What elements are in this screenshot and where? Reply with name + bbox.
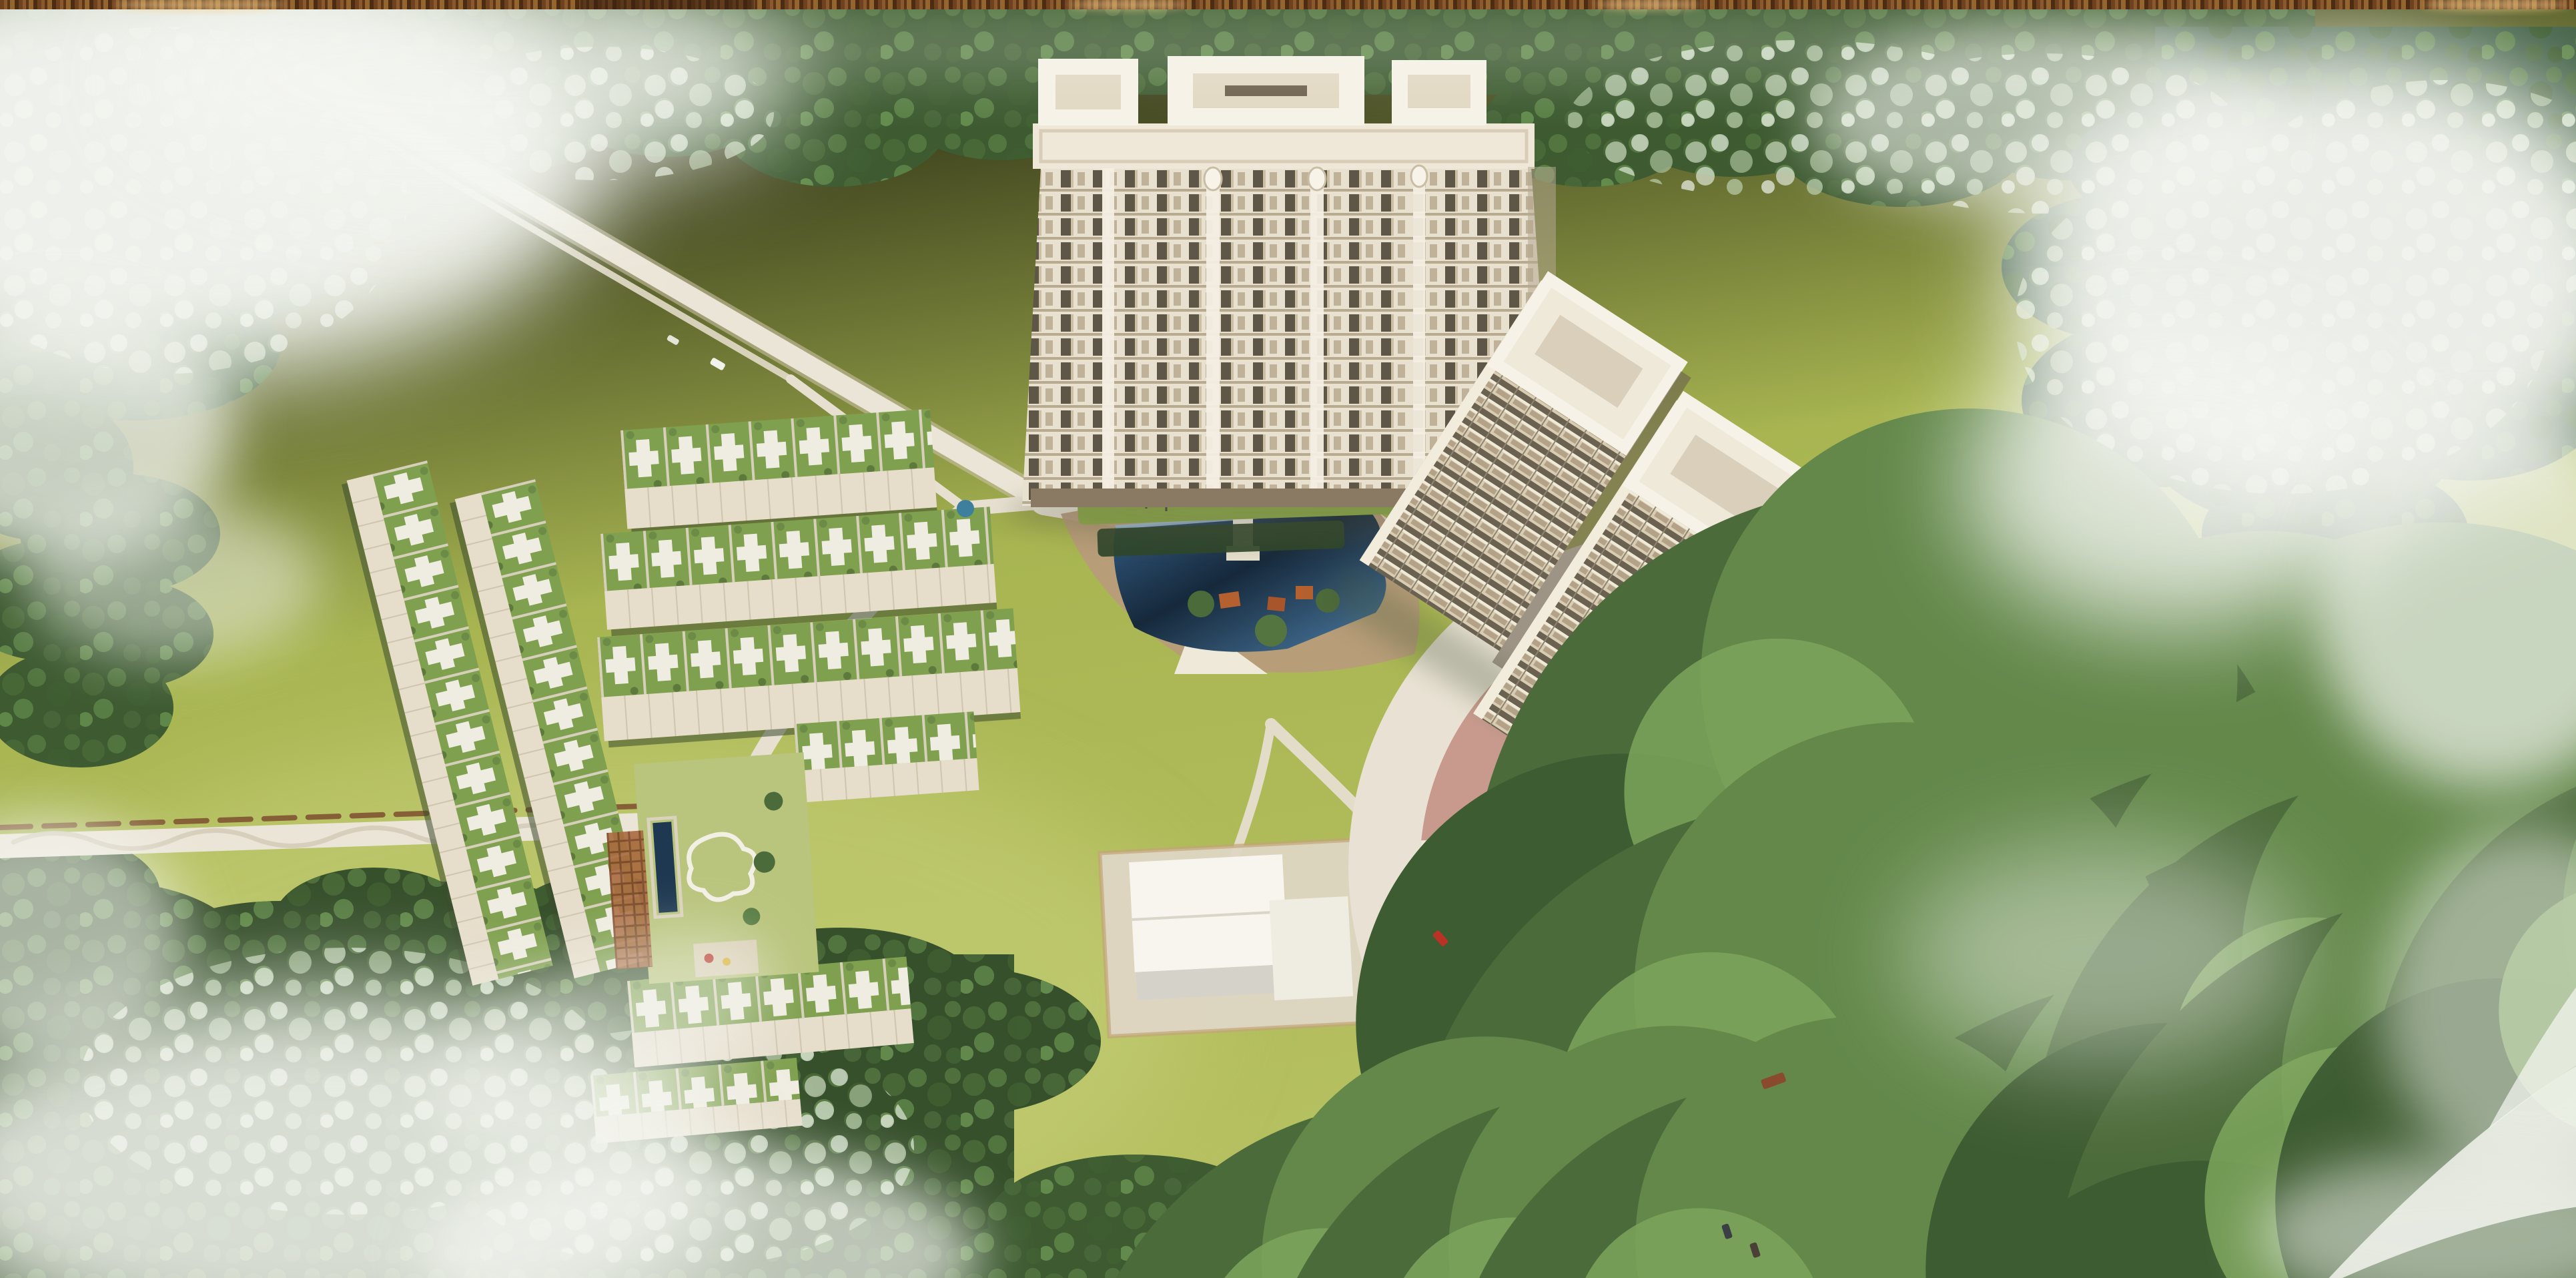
roundabout-pond <box>957 500 974 517</box>
wood-slat-strip <box>0 0 2576 11</box>
render-canvas: Aerial 3D architectural render of a gree… <box>0 0 2576 1278</box>
aerial-render: Aerial 3D architectural render of a gree… <box>0 0 2576 1278</box>
clubhouse-annex <box>1269 896 1353 1000</box>
row-block <box>794 711 979 803</box>
clubhouse <box>1100 840 1369 1036</box>
